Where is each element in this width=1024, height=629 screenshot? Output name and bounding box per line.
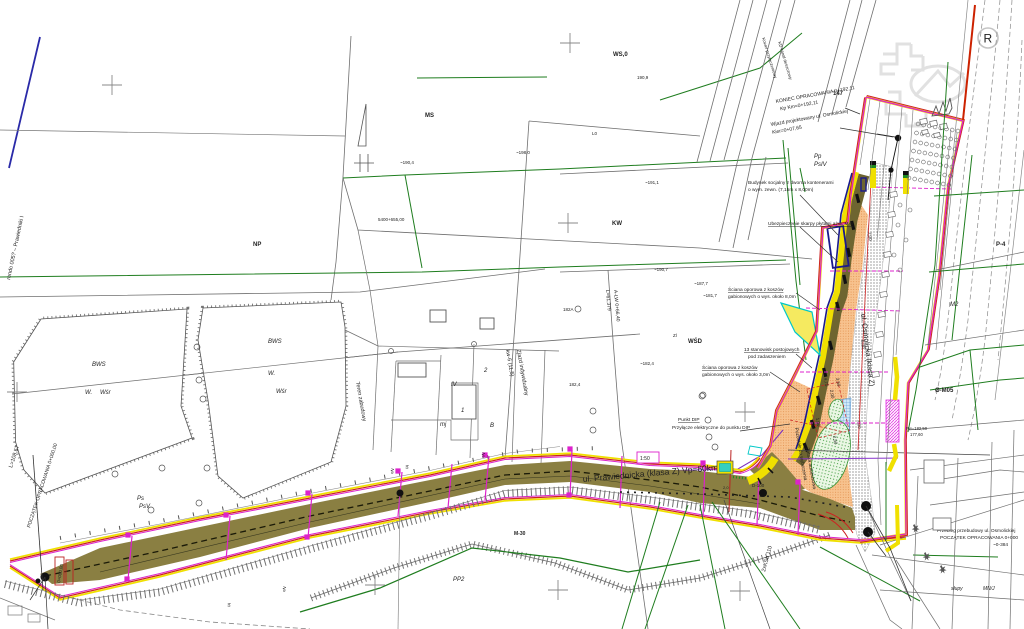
svg-text:NP: NP [253,242,261,248]
svg-text:13 stanowisk postojowych: 13 stanowisk postojowych [744,347,800,353]
svg-text:PsV: PsV [139,504,151,510]
svg-text:o wym. zewn. (7,15m x 8,00m): o wym. zewn. (7,15m x 8,00m) [748,187,814,193]
svg-text:słupy: słupy [951,586,963,592]
svg-text:Ubezpieczenie skarpy płytami a: Ubezpieczenie skarpy płytami ażur. M-6 [768,221,853,227]
svg-text:gabionowych o wys. około 3,0m: gabionowych o wys. około 3,0m [702,372,770,378]
svg-text:M-30: M-30 [514,531,526,537]
svg-text:BWS: BWS [268,339,282,345]
svg-text:W.: W. [85,390,92,396]
svg-text:~198,0: ~198,0 [516,150,530,155]
svg-text:147: 147 [833,91,844,97]
svg-text:5400+655,00: 5400+655,00 [378,217,405,222]
svg-text:gabionowych o wys. około 8,0m: gabionowych o wys. około 8,0m [728,294,796,300]
svg-text:Zl: Zl [673,333,677,338]
svg-text:1: 1 [461,408,464,414]
svg-text:PP2: PP2 [453,577,465,583]
svg-text:Pp: Pp [814,154,822,160]
svg-text:W.: W. [268,371,275,377]
svg-text:BWS: BWS [92,362,106,368]
svg-text:Ps: Ps [137,496,144,502]
svg-text:Przyłącze elektryczne do punkt: Przyłącze elektryczne do punktu DIP [672,425,750,431]
svg-text:IV: IV [451,382,458,388]
svg-text:KW: KW [612,221,622,227]
svg-text:Punkt DIP: Punkt DIP [678,417,700,423]
svg-text:~182,4: ~182,4 [640,361,654,366]
svg-text:Wśr: Wśr [276,389,288,395]
svg-text:182A: 182A [563,307,574,312]
svg-text:177,60: 177,60 [910,432,923,437]
svg-text:L0: L0 [592,131,598,136]
svg-text:2: 2 [483,368,488,374]
svg-text:Wśr: Wśr [100,390,112,396]
svg-text:M2: M2 [950,302,959,308]
svg-text:2,0: 2,0 [723,485,729,490]
svg-text:~191,1: ~191,1 [645,180,659,185]
svg-text:mj: mj [440,422,447,428]
svg-text:Budynek socjalny z dwoma konte: Budynek socjalny z dwoma kontenerami [748,180,834,186]
svg-text:MN/J: MN/J [983,586,995,592]
svg-text:WS,0: WS,0 [613,52,628,58]
svg-text:Ø-M05: Ø-M05 [935,388,954,394]
svg-text:pod zadaszeniem: pod zadaszeniem [748,354,786,360]
svg-text:PsIV: PsIV [814,162,828,168]
svg-text:182,4: 182,4 [569,382,581,387]
svg-text:Pw=182,50: Pw=182,50 [906,426,928,431]
svg-text:WŚD: WŚD [688,338,703,345]
svg-text:B: B [490,423,494,429]
svg-text:~190,4: ~190,4 [400,160,414,165]
svg-text:~190,7: ~190,7 [654,267,668,272]
svg-text:~0-384: ~0-384 [993,542,1008,548]
svg-text:POCZĄTEK OPRACOWANIA 0+000: POCZĄTEK OPRACOWANIA 0+000 [940,535,1018,541]
svg-text:~187,7: ~187,7 [694,281,708,286]
svg-text:~181,7: ~181,7 [703,293,717,298]
svg-text:R: R [984,32,993,46]
svg-text:190,9: 190,9 [637,75,649,80]
svg-text:P-4: P-4 [996,242,1006,248]
svg-text:1:50: 1:50 [640,456,650,462]
svg-text:MS: MS [425,113,434,119]
svg-text:D-100: D-100 [752,483,765,488]
